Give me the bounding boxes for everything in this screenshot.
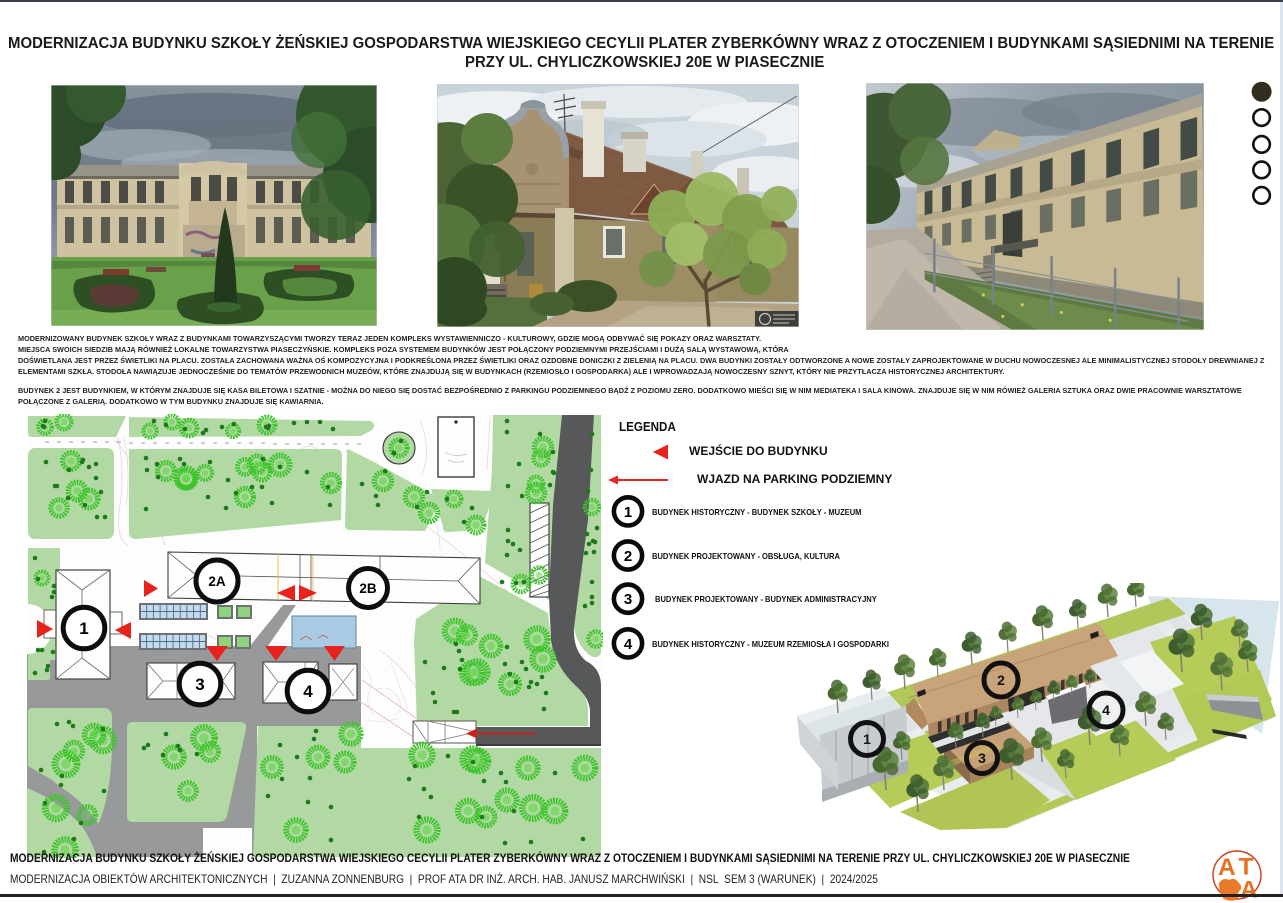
svg-text:1: 1 [863,731,871,747]
svg-text:A: A [1218,854,1236,881]
svg-text:2: 2 [997,672,1005,688]
svg-text:2B: 2B [359,581,377,596]
svg-text:1: 1 [624,504,632,521]
svg-text:4: 4 [1102,702,1110,718]
svg-text:1: 1 [79,619,88,638]
svg-text:2A: 2A [208,574,226,589]
svg-text:4: 4 [624,636,633,653]
svg-text:3: 3 [624,591,632,608]
svg-text:2: 2 [624,548,632,565]
svg-text:4: 4 [303,682,313,701]
svg-text:A: A [1240,877,1258,903]
svg-text:3: 3 [978,750,986,766]
svg-text:3: 3 [195,675,204,694]
